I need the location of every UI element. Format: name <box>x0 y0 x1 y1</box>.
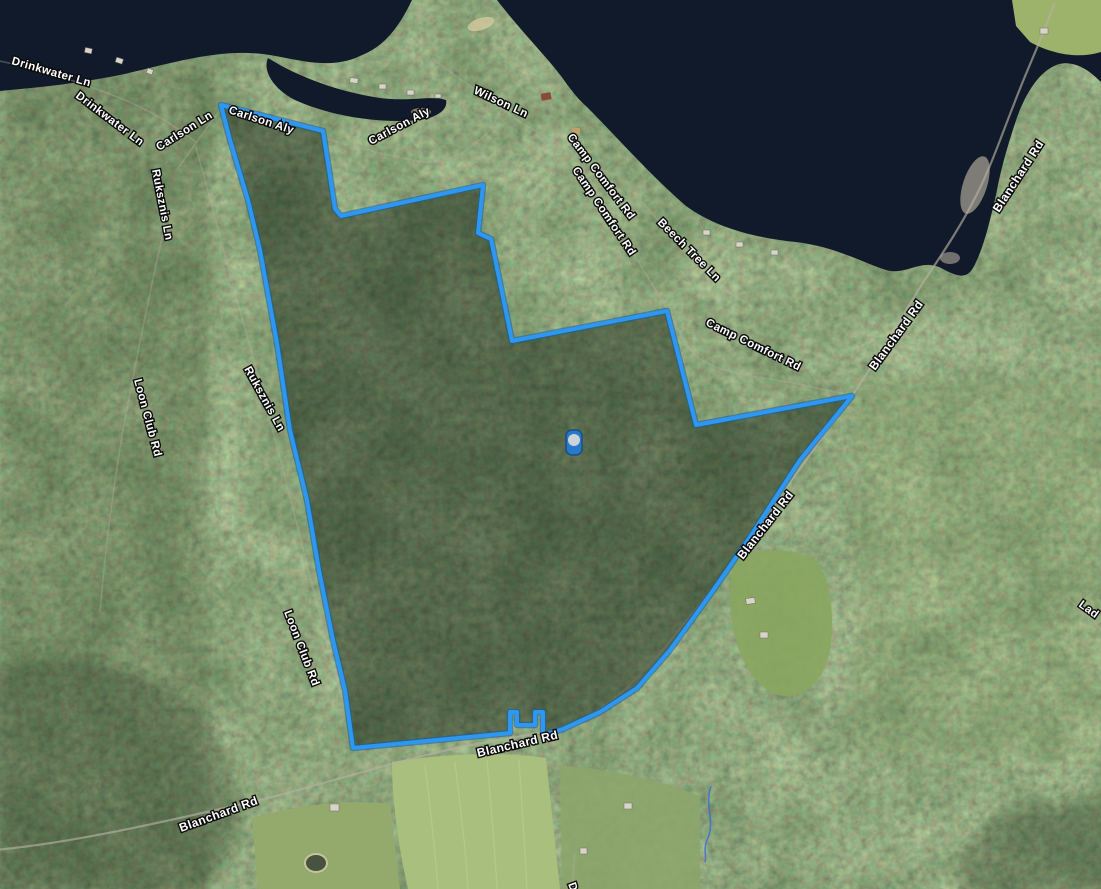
map-canvas[interactable]: Drinkwater Ln Drinkwater Ln Carlson Ln C… <box>0 0 1101 889</box>
pond-marker[interactable] <box>566 430 582 455</box>
satellite-map: Drinkwater Ln Drinkwater Ln Carlson Ln C… <box>0 0 1101 889</box>
farm-pond <box>305 854 327 872</box>
